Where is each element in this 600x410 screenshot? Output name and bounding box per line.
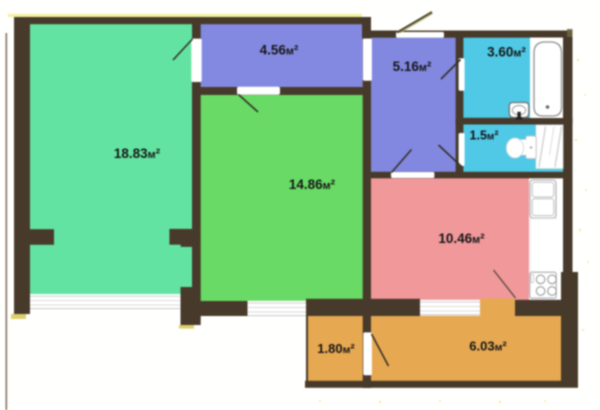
svg-text:3.60м²: 3.60м² — [487, 45, 526, 60]
svg-text:10.46м²: 10.46м² — [438, 231, 485, 246]
svg-text:18.83м²: 18.83м² — [114, 146, 161, 161]
svg-text:6.03м²: 6.03м² — [469, 339, 507, 354]
svg-text:14.86м²: 14.86м² — [289, 177, 336, 192]
svg-text:1.80м²: 1.80м² — [317, 341, 355, 356]
svg-text:5.16м²: 5.16м² — [393, 59, 432, 74]
svg-text:4.56м²: 4.56м² — [260, 43, 299, 58]
svg-text:1.5м²: 1.5м² — [470, 129, 499, 143]
